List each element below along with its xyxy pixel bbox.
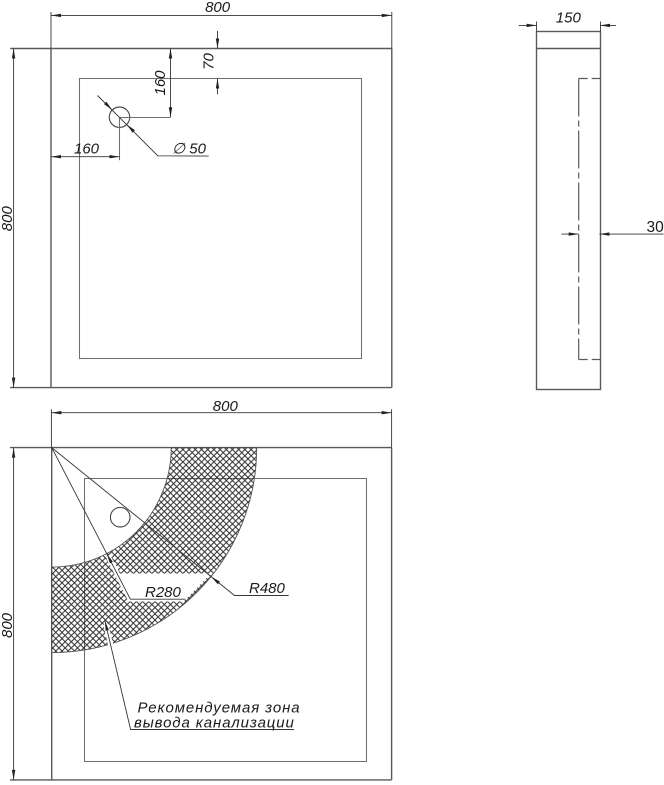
svg-text:160: 160 [74, 141, 100, 158]
svg-text:R280: R280 [145, 584, 182, 601]
svg-text:800: 800 [0, 206, 16, 232]
svg-text:вывода канализации: вывода канализации [134, 714, 295, 731]
svg-text:150: 150 [556, 10, 582, 27]
svg-text:800: 800 [213, 398, 239, 415]
svg-text:∅ 50: ∅ 50 [172, 140, 207, 157]
svg-text:R480: R480 [249, 580, 286, 597]
svg-text:30: 30 [647, 219, 664, 236]
svg-text:160: 160 [152, 70, 169, 96]
svg-text:800: 800 [0, 612, 16, 638]
svg-text:70: 70 [201, 53, 218, 70]
svg-text:800: 800 [205, 0, 231, 16]
